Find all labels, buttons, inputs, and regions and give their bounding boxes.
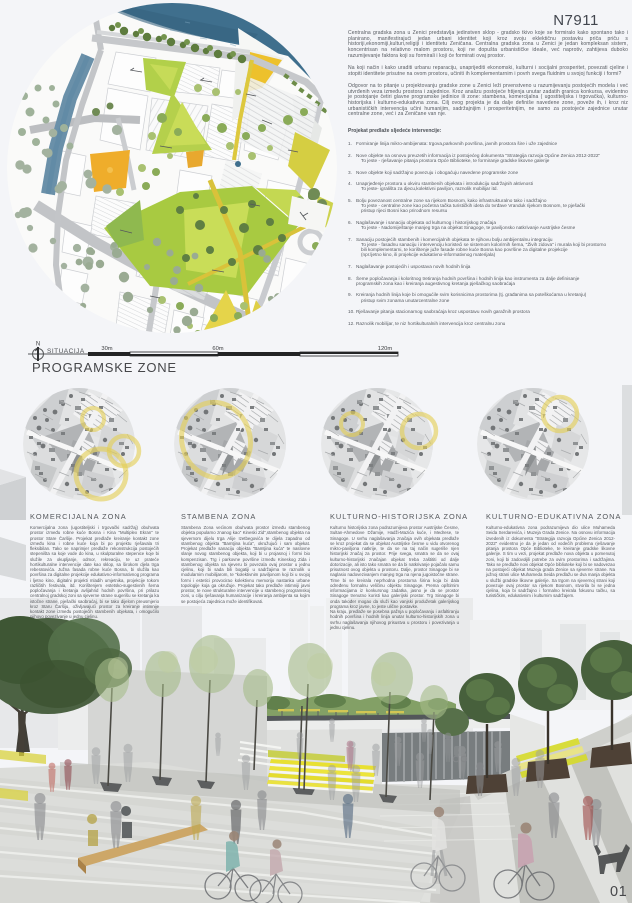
svg-text:120m: 120m bbox=[378, 346, 393, 352]
svg-text:60m: 60m bbox=[212, 346, 223, 352]
svg-text:N: N bbox=[36, 342, 40, 348]
svg-text:30m: 30m bbox=[101, 346, 112, 352]
